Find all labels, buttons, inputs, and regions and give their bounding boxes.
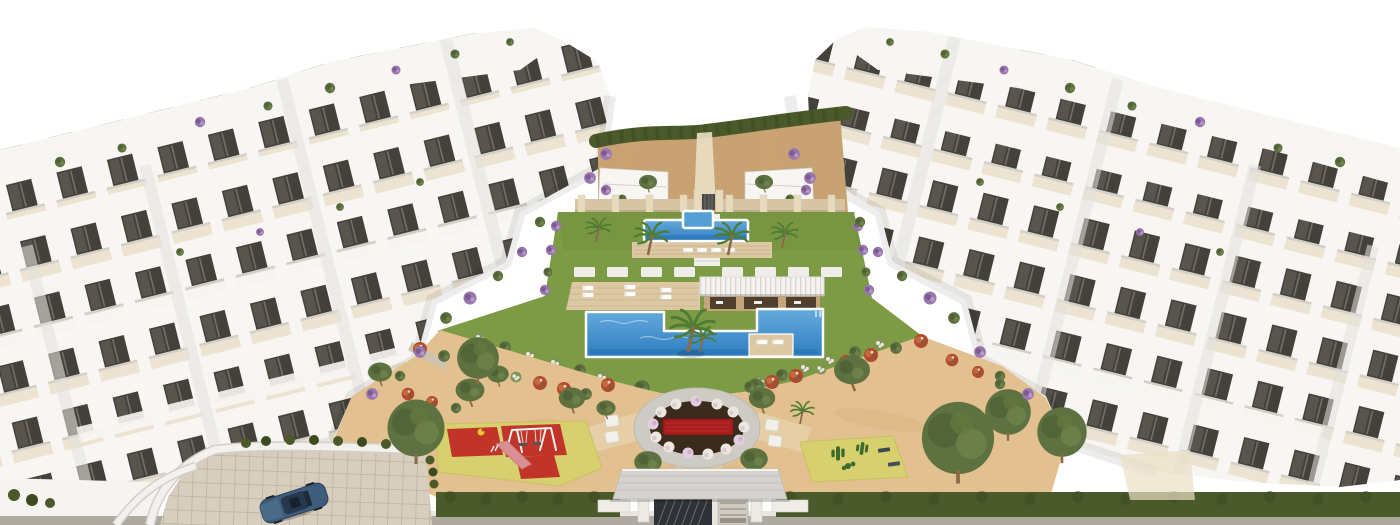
garden-bench — [605, 431, 619, 444]
slope-gate-icon — [702, 194, 715, 210]
spring-toy — [478, 429, 485, 436]
spa-pool — [683, 211, 713, 228]
pergola-roof — [700, 277, 824, 296]
garden-bench — [765, 419, 779, 432]
pool-island-deck — [749, 334, 793, 356]
cactus-court — [800, 436, 908, 482]
entrance-canopy — [613, 469, 787, 499]
garden-bench — [768, 435, 782, 448]
render-canvas — [0, 0, 1400, 525]
complex-aerial-render — [0, 0, 1400, 525]
